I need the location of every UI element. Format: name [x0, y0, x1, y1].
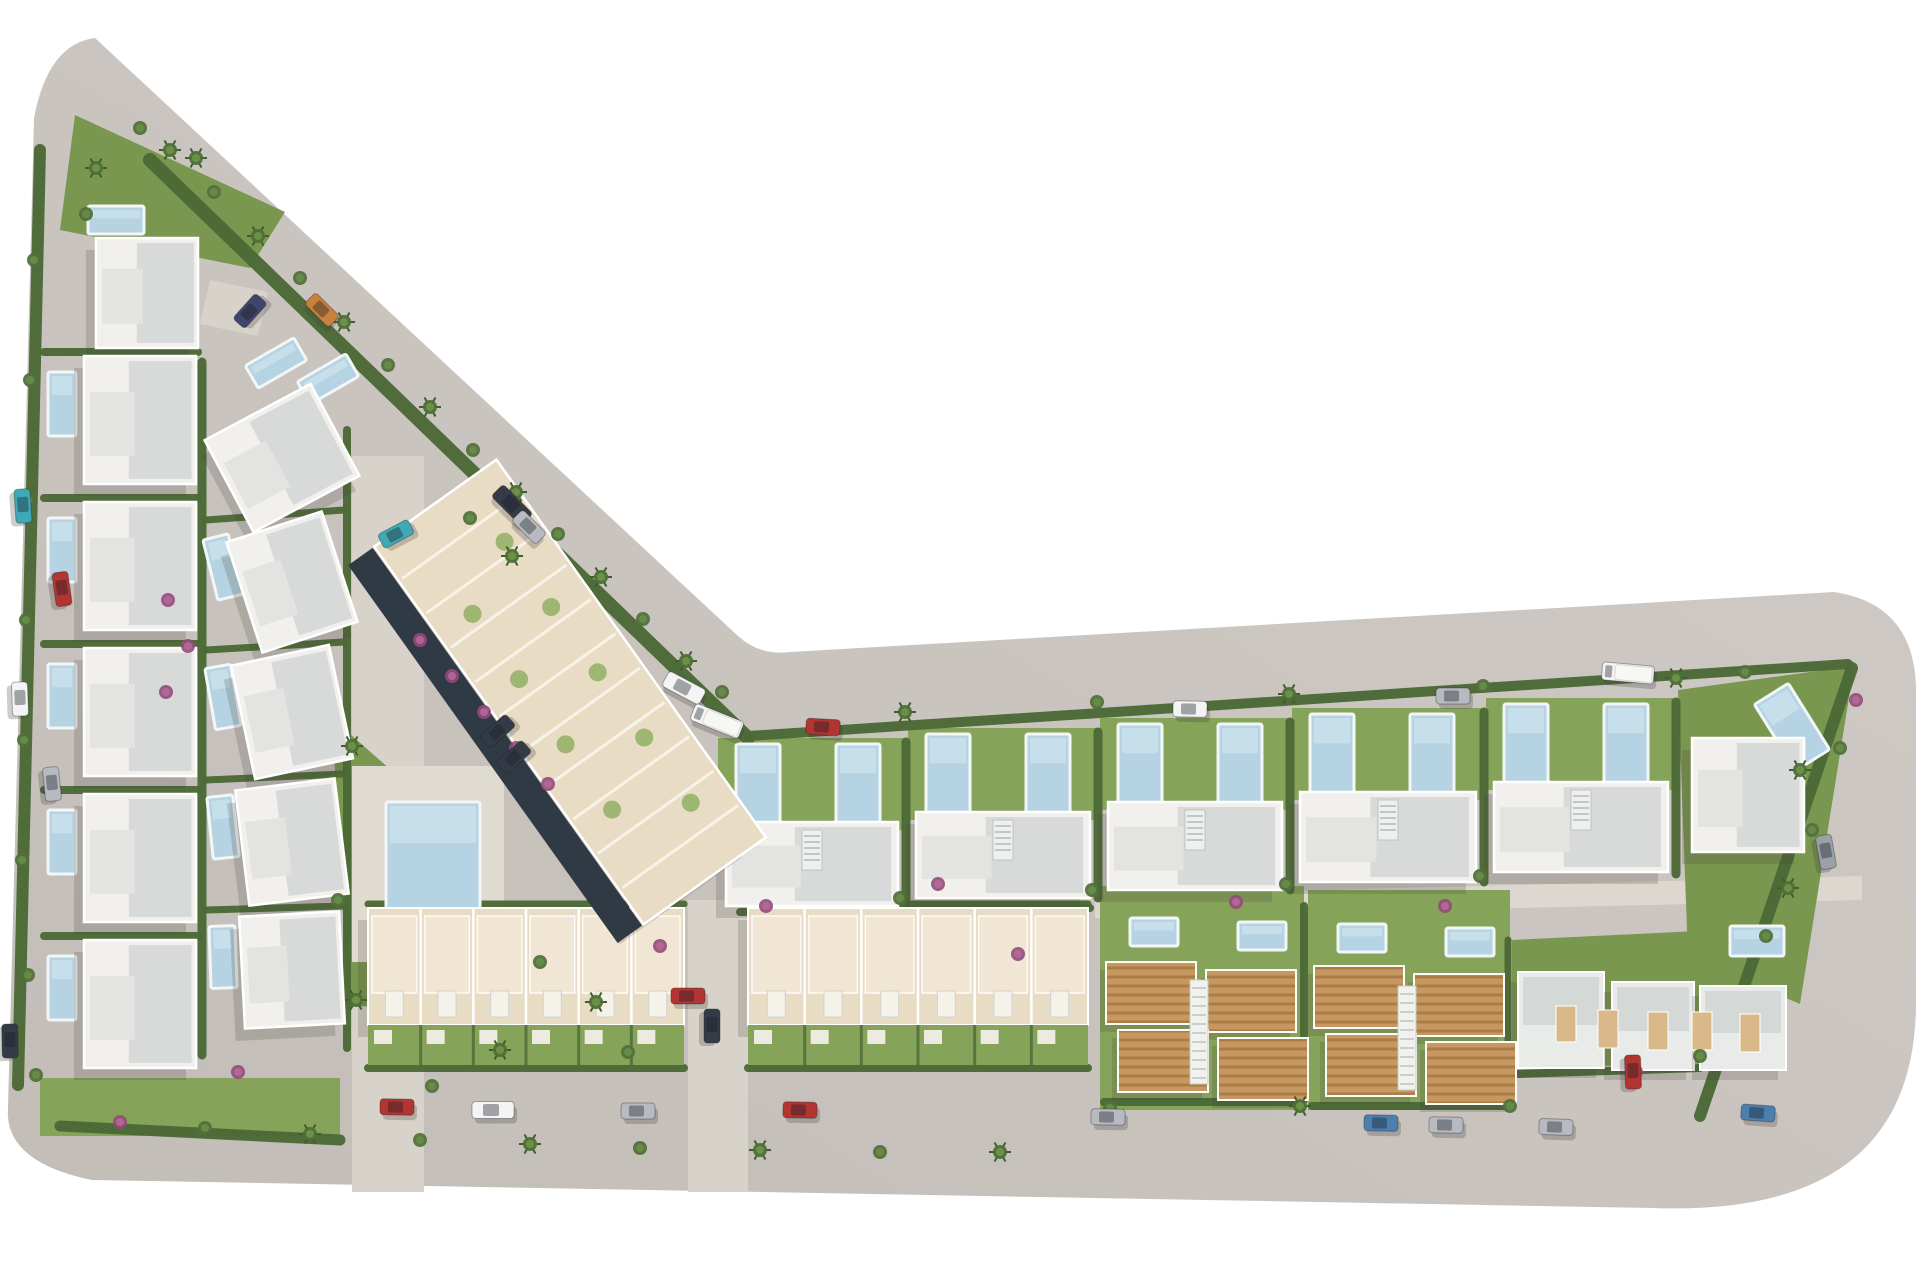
villa-building — [74, 940, 196, 1080]
car-roof — [388, 1101, 403, 1112]
swimming-pool — [1130, 918, 1178, 946]
bush — [1738, 665, 1752, 679]
swimming-pool — [48, 956, 76, 1020]
sun-awning — [1740, 1014, 1760, 1052]
car — [1619, 1055, 1641, 1093]
swimming-pool — [1504, 704, 1548, 788]
bush — [331, 893, 345, 907]
bougainvillea-bush — [445, 669, 459, 683]
swimming-pool — [48, 664, 76, 728]
sun-awning — [1692, 1012, 1712, 1050]
car-roof — [55, 579, 68, 595]
bush — [1090, 695, 1104, 709]
bush — [1503, 1099, 1517, 1113]
roof-access — [543, 991, 561, 1017]
bougainvillea-bush — [113, 1115, 127, 1129]
car — [1364, 1115, 1401, 1137]
car — [1091, 1109, 1128, 1131]
car — [1539, 1118, 1577, 1140]
bougainvillea-bush — [653, 939, 667, 953]
stair-strip — [1398, 986, 1416, 1090]
car-roof — [1181, 703, 1196, 714]
page: { "meta": { "description": "Aerial 3D ar… — [0, 0, 1920, 1280]
bush — [1693, 1049, 1707, 1063]
swimming-pool — [926, 734, 970, 818]
patio — [811, 1030, 829, 1044]
patio — [585, 1030, 603, 1044]
patio — [532, 1030, 550, 1044]
car-roof — [4, 1032, 15, 1047]
bush — [425, 1079, 439, 1093]
terracotta-house — [1212, 1038, 1308, 1108]
site-plan-render — [0, 0, 1920, 1280]
bush — [533, 955, 547, 969]
roof-access — [491, 991, 509, 1017]
car-roof — [1372, 1117, 1387, 1128]
patio — [867, 1030, 885, 1044]
bougainvillea-bush — [231, 1065, 245, 1079]
patio — [427, 1030, 445, 1044]
bougainvillea-bush — [161, 593, 175, 607]
villa-building — [1290, 792, 1476, 894]
bush — [1759, 929, 1773, 943]
roof-access — [438, 991, 456, 1017]
car — [621, 1103, 658, 1124]
swimming-pool — [88, 206, 144, 234]
townhouse-unit — [1035, 916, 1084, 993]
bush — [413, 1133, 427, 1147]
bush — [133, 121, 147, 135]
bush — [293, 271, 307, 285]
patio — [754, 1030, 772, 1044]
villa-building — [229, 911, 345, 1041]
bush — [873, 1145, 887, 1159]
car-roof — [1437, 1119, 1452, 1130]
bush — [633, 1141, 647, 1155]
roof-access — [824, 991, 842, 1017]
patio — [981, 1030, 999, 1044]
bougainvillea-bush — [1011, 947, 1025, 961]
roof-garden — [510, 670, 528, 688]
roof-garden — [542, 598, 560, 616]
car — [9, 488, 33, 526]
bush — [207, 185, 221, 199]
truck-box — [1614, 664, 1652, 682]
townhouse-unit — [922, 916, 971, 993]
sun-awning — [1648, 1012, 1668, 1050]
roof-access — [937, 991, 955, 1017]
townhouse-block — [738, 908, 1088, 1065]
bush — [1805, 823, 1819, 837]
bougainvillea-bush — [477, 705, 491, 719]
van — [472, 1102, 517, 1124]
car-roof — [814, 721, 830, 733]
car — [380, 1099, 417, 1121]
car — [1429, 1117, 1466, 1139]
bush — [1473, 869, 1487, 883]
car-roof — [707, 1017, 718, 1032]
car-roof — [791, 1104, 806, 1115]
townhouse-unit — [530, 916, 575, 993]
roof-access — [994, 991, 1012, 1017]
roof-access — [649, 991, 667, 1017]
bush — [715, 685, 729, 699]
swimming-pool — [1410, 714, 1454, 798]
car — [783, 1102, 820, 1124]
car — [0, 1024, 18, 1061]
villa-building — [906, 812, 1090, 910]
bougainvillea-bush — [541, 777, 555, 791]
terracotta-house — [1200, 970, 1296, 1040]
townhouse-unit — [372, 916, 417, 993]
townhouse-unit — [809, 916, 858, 993]
villa-building — [74, 502, 196, 642]
bush — [1833, 741, 1847, 755]
terracotta-house — [1308, 966, 1404, 1036]
swimming-pool — [1446, 928, 1494, 956]
terracotta-house — [1420, 1042, 1516, 1112]
site-plan-svg — [0, 0, 1920, 1280]
bougainvillea-bush — [759, 899, 773, 913]
roof-garden — [635, 729, 653, 747]
bush — [15, 853, 29, 867]
swimming-pool — [1338, 924, 1386, 952]
car — [6, 682, 28, 720]
car-roof — [679, 991, 694, 1002]
patio — [637, 1030, 655, 1044]
townhouse-unit — [752, 916, 801, 993]
roof-garden — [682, 794, 700, 812]
bush — [27, 253, 41, 267]
roof-access — [881, 991, 899, 1017]
terracotta-house — [1408, 974, 1504, 1044]
swimming-pool — [1730, 926, 1784, 956]
swimming-pool — [1310, 714, 1354, 798]
bush — [17, 733, 31, 747]
car — [805, 718, 843, 741]
villa-building — [74, 794, 196, 934]
bush — [19, 613, 33, 627]
roof-garden — [496, 533, 514, 551]
bougainvillea-bush — [931, 877, 945, 891]
bougainvillea-bush — [413, 633, 427, 647]
car-roof — [46, 774, 59, 790]
bush — [1279, 877, 1293, 891]
sun-awning — [1598, 1010, 1618, 1048]
swimming-pool — [1238, 922, 1286, 950]
car — [699, 1009, 720, 1046]
townhouse-unit — [865, 916, 914, 993]
patio — [924, 1030, 942, 1044]
car — [1436, 688, 1473, 709]
patio — [374, 1030, 392, 1044]
bush — [23, 373, 37, 387]
bush — [198, 1121, 212, 1135]
roof-access — [385, 991, 403, 1017]
bush — [551, 527, 565, 541]
car-roof — [1444, 691, 1459, 702]
bush — [1085, 883, 1099, 897]
truck — [1601, 662, 1658, 690]
swimming-pool — [836, 744, 880, 828]
villa-building — [74, 356, 196, 496]
swimming-pool — [48, 810, 76, 874]
roof-garden — [464, 605, 482, 623]
bush — [893, 891, 907, 905]
car-roof — [1099, 1111, 1114, 1122]
car-roof — [1547, 1121, 1562, 1133]
car-roof — [483, 1104, 499, 1116]
bush — [21, 968, 35, 982]
bush — [79, 207, 93, 221]
car-roof — [629, 1106, 644, 1117]
swimming-pool — [1604, 704, 1648, 788]
villa-building — [1098, 802, 1282, 902]
bush — [621, 1045, 635, 1059]
car-roof — [1627, 1063, 1639, 1078]
swimming-pool — [48, 372, 76, 436]
villa-building — [86, 238, 198, 360]
bush — [1476, 679, 1490, 693]
stair-strip — [1190, 980, 1208, 1084]
bougainvillea-bush — [159, 685, 173, 699]
swimming-pool — [1218, 724, 1262, 808]
bush — [463, 511, 477, 525]
roof-garden — [589, 663, 607, 681]
patio — [1037, 1030, 1055, 1044]
car — [1173, 701, 1210, 723]
roof-garden — [603, 801, 621, 819]
car-roof — [1749, 1107, 1765, 1119]
bougainvillea-bush — [1849, 693, 1863, 707]
bush — [29, 1068, 43, 1082]
swimming-pool — [1026, 734, 1070, 818]
car-roof — [17, 497, 29, 513]
car — [37, 766, 62, 805]
car-roof — [14, 690, 26, 705]
bougainvillea-bush — [1438, 899, 1452, 913]
terracotta-house — [1100, 962, 1196, 1032]
bougainvillea-bush — [181, 639, 195, 653]
villa-building — [1484, 782, 1668, 884]
sun-awning — [1556, 1006, 1576, 1042]
townhouse-unit — [425, 916, 470, 993]
roof-garden — [557, 735, 575, 753]
bush — [381, 358, 395, 372]
swimming-pool — [1118, 724, 1162, 808]
roof-access — [1051, 991, 1069, 1017]
townhouse-unit — [477, 916, 522, 993]
villa-building — [1682, 738, 1804, 864]
bush — [466, 443, 480, 457]
car — [1740, 1104, 1778, 1128]
car — [671, 988, 708, 1009]
roof-access — [767, 991, 785, 1017]
bush — [636, 612, 650, 626]
villa-building — [74, 648, 196, 788]
bougainvillea-bush — [1229, 895, 1243, 909]
